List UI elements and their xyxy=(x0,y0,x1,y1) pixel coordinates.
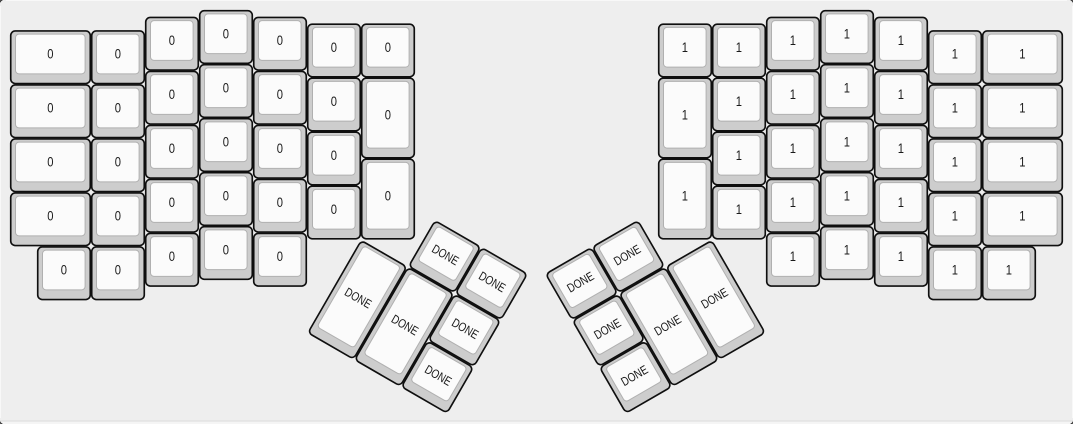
svg-text:1: 1 xyxy=(952,262,958,277)
svg-text:1: 1 xyxy=(844,242,850,257)
svg-text:1: 1 xyxy=(1019,46,1025,61)
svg-text:1: 1 xyxy=(790,249,796,264)
svg-text:1: 1 xyxy=(898,87,904,102)
svg-text:0: 0 xyxy=(277,195,283,210)
svg-text:0: 0 xyxy=(385,40,391,55)
svg-text:0: 0 xyxy=(169,141,175,156)
svg-text:0: 0 xyxy=(223,242,229,257)
svg-text:0: 0 xyxy=(115,154,121,169)
svg-text:0: 0 xyxy=(277,33,283,48)
svg-text:1: 1 xyxy=(1019,208,1025,223)
svg-text:0: 0 xyxy=(223,26,229,41)
svg-text:0: 0 xyxy=(223,134,229,149)
svg-text:1: 1 xyxy=(952,208,958,223)
svg-text:1: 1 xyxy=(790,33,796,48)
svg-text:1: 1 xyxy=(952,154,958,169)
svg-text:0: 0 xyxy=(47,154,53,169)
svg-text:1: 1 xyxy=(898,141,904,156)
svg-text:0: 0 xyxy=(277,87,283,102)
svg-text:0: 0 xyxy=(277,249,283,264)
svg-text:1: 1 xyxy=(736,148,742,163)
svg-text:1: 1 xyxy=(1006,262,1012,277)
svg-text:0: 0 xyxy=(115,208,121,223)
svg-text:0: 0 xyxy=(223,188,229,203)
svg-text:0: 0 xyxy=(169,87,175,102)
svg-text:1: 1 xyxy=(898,33,904,48)
svg-text:1: 1 xyxy=(682,107,688,122)
svg-text:1: 1 xyxy=(736,202,742,217)
svg-text:0: 0 xyxy=(331,148,337,163)
svg-text:0: 0 xyxy=(115,46,121,61)
svg-text:0: 0 xyxy=(169,195,175,210)
svg-text:1: 1 xyxy=(790,87,796,102)
svg-text:1: 1 xyxy=(1019,100,1025,115)
svg-text:0: 0 xyxy=(223,80,229,95)
svg-text:0: 0 xyxy=(385,107,391,122)
svg-text:1: 1 xyxy=(682,188,688,203)
svg-text:0: 0 xyxy=(47,46,53,61)
svg-text:0: 0 xyxy=(47,208,53,223)
svg-text:1: 1 xyxy=(736,94,742,109)
svg-text:1: 1 xyxy=(844,26,850,41)
svg-text:1: 1 xyxy=(736,40,742,55)
svg-text:1: 1 xyxy=(790,195,796,210)
svg-text:0: 0 xyxy=(169,249,175,264)
svg-text:0: 0 xyxy=(331,94,337,109)
svg-text:1: 1 xyxy=(1019,154,1025,169)
svg-text:1: 1 xyxy=(844,188,850,203)
svg-text:1: 1 xyxy=(952,46,958,61)
svg-text:0: 0 xyxy=(331,40,337,55)
svg-text:1: 1 xyxy=(898,249,904,264)
svg-text:0: 0 xyxy=(277,141,283,156)
svg-text:0: 0 xyxy=(47,100,53,115)
svg-text:0: 0 xyxy=(115,262,121,277)
svg-text:1: 1 xyxy=(844,80,850,95)
svg-text:0: 0 xyxy=(385,188,391,203)
svg-text:1: 1 xyxy=(790,141,796,156)
svg-text:0: 0 xyxy=(169,33,175,48)
svg-text:0: 0 xyxy=(331,202,337,217)
svg-text:0: 0 xyxy=(61,262,67,277)
svg-text:1: 1 xyxy=(898,195,904,210)
svg-text:1: 1 xyxy=(952,100,958,115)
svg-text:0: 0 xyxy=(115,100,121,115)
svg-text:1: 1 xyxy=(682,40,688,55)
svg-text:1: 1 xyxy=(844,134,850,149)
